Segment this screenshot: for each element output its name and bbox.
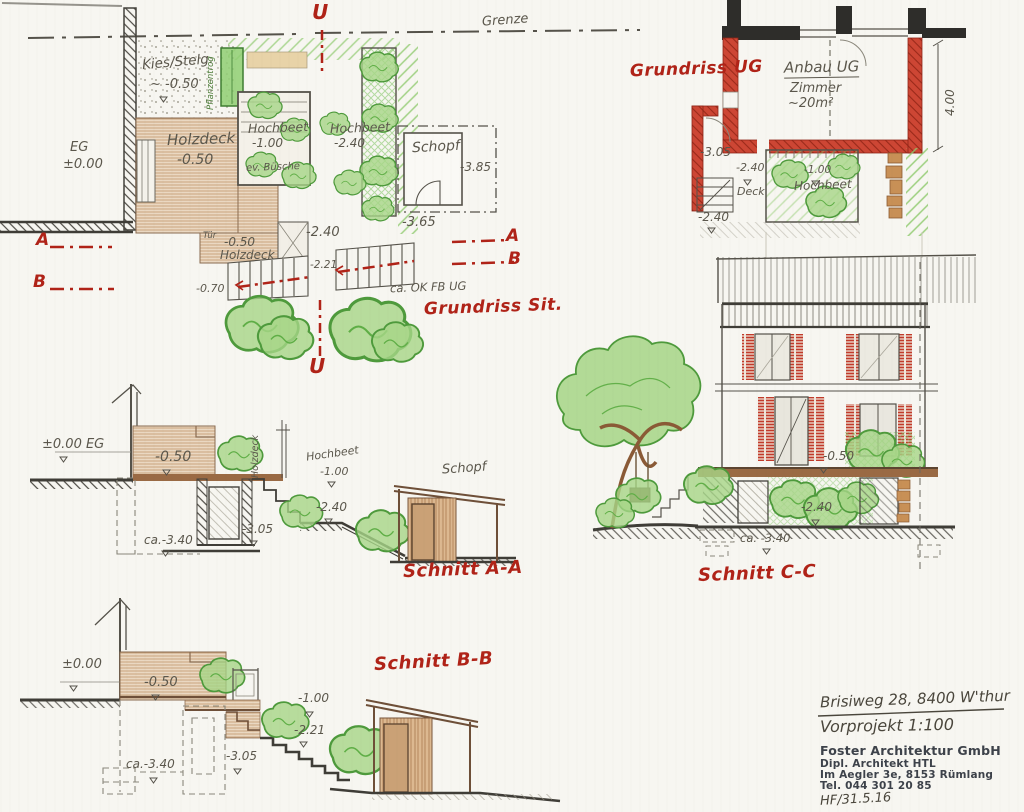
plan-level-240: -2.40	[306, 226, 340, 240]
aa-level-340: ca.-3.40	[144, 534, 193, 547]
ug-level-305: -3.05	[700, 146, 731, 159]
plan-level-365: -3.65	[402, 216, 436, 230]
plan-hochbeet1-level: -1.00	[252, 137, 283, 150]
aa-schopf-label: Schopf	[442, 460, 487, 477]
titleblock-project: Vorprojekt 1:100	[820, 717, 954, 736]
section-marker-a-right: A	[506, 228, 519, 246]
plan-schopf-level: -3.85	[460, 161, 491, 174]
cc-level-340: ca. -3.40	[740, 532, 790, 544]
aa-holzdeck-label: Holzdeck	[251, 424, 261, 478]
section-marker-u-top: U	[312, 2, 328, 23]
section-marker-u-bottom: U	[309, 356, 325, 377]
plan-kies-level: ~ -0.50	[150, 78, 199, 92]
bb-level-100: -1.00	[298, 692, 329, 705]
ug-hochbeet-level: -1.00	[804, 165, 831, 176]
plan-tuer-label: Tür	[203, 232, 216, 241]
ug-deck-label: Deck	[737, 186, 765, 198]
plan-holzdeck-level: -0.50	[177, 153, 213, 168]
ug-anbau-label: Anbau UG	[784, 59, 860, 78]
plan-hochbeet1-note: ev. Büsche	[246, 162, 300, 174]
plan-eg-label: EG	[70, 141, 88, 155]
titleblock-firm: Foster Architektur GmbH	[820, 744, 1001, 757]
cc-level-050: -0.50	[823, 450, 854, 463]
section-marker-b-left: B	[33, 274, 46, 292]
aa-eg-level: ±0.00 EG	[42, 438, 104, 452]
aa-hochbeet-level: -1.00	[320, 466, 348, 478]
schnitt-bb-art	[20, 598, 560, 801]
cc-level-240: -2.40	[801, 501, 832, 514]
schnitt-aa-title: Schnitt A-A	[403, 559, 523, 582]
plan-holzdeck-label: Holzdeck	[167, 131, 236, 149]
bb-level-050: -0.50	[144, 676, 178, 690]
grundriss-ug-art	[692, 0, 966, 238]
plan-hochbeet1-label: Hochbeet	[248, 120, 308, 135]
plan-deck2-label: Holzdeck	[220, 249, 275, 262]
ug-hochbeet-label: Hochbeet	[794, 178, 852, 193]
plan-schopf-label: Schopf	[412, 139, 461, 156]
section-marker-a-left: A	[36, 232, 49, 250]
boundary-label: Grenze	[482, 12, 529, 29]
bb-level-221: -2.21	[294, 724, 325, 737]
plan-okfb-label: ca. OK FB UG	[390, 280, 467, 295]
sketch-linework	[0, 0, 1024, 812]
bb-level-305: -3.05	[226, 750, 257, 763]
aa-deck-level: -0.50	[155, 450, 191, 465]
aa-level-240: -2.40	[316, 501, 347, 514]
plan-level-221: -2.21	[310, 260, 337, 271]
ug-zimmer-area: ~20m²	[788, 97, 833, 111]
bb-level-340: ca.-3.40	[126, 758, 175, 771]
plan-level-070: -0.70	[196, 283, 224, 295]
schnitt-cc-title: Schnitt C-C	[698, 563, 817, 586]
section-marker-b-right: B	[508, 251, 521, 269]
drawing-sheet: Grenze U U A A B B Kies/Stelg. ~ -0.50 E…	[0, 0, 1024, 812]
ug-zimmer-label: Zimmer	[790, 82, 841, 96]
plan-eg-level: ±0.00	[63, 158, 103, 172]
ug-dim-400: 4.00	[944, 72, 957, 116]
plan-deck2-level: -0.50	[224, 236, 255, 249]
ug-level-240b: -2.40	[698, 211, 729, 224]
plan-pflanzentrog-label: Pflanzentrog	[207, 48, 216, 110]
bb-level-000: ±0.00	[62, 658, 102, 672]
schnitt-cc-art	[557, 232, 976, 570]
ug-level-240a: -2.40	[736, 162, 764, 174]
aa-level-305: -3.05	[242, 523, 273, 536]
plan-hochbeet2-level: -2.40	[334, 137, 365, 150]
plan-hochbeet2-label: Hochbeet	[330, 120, 390, 135]
